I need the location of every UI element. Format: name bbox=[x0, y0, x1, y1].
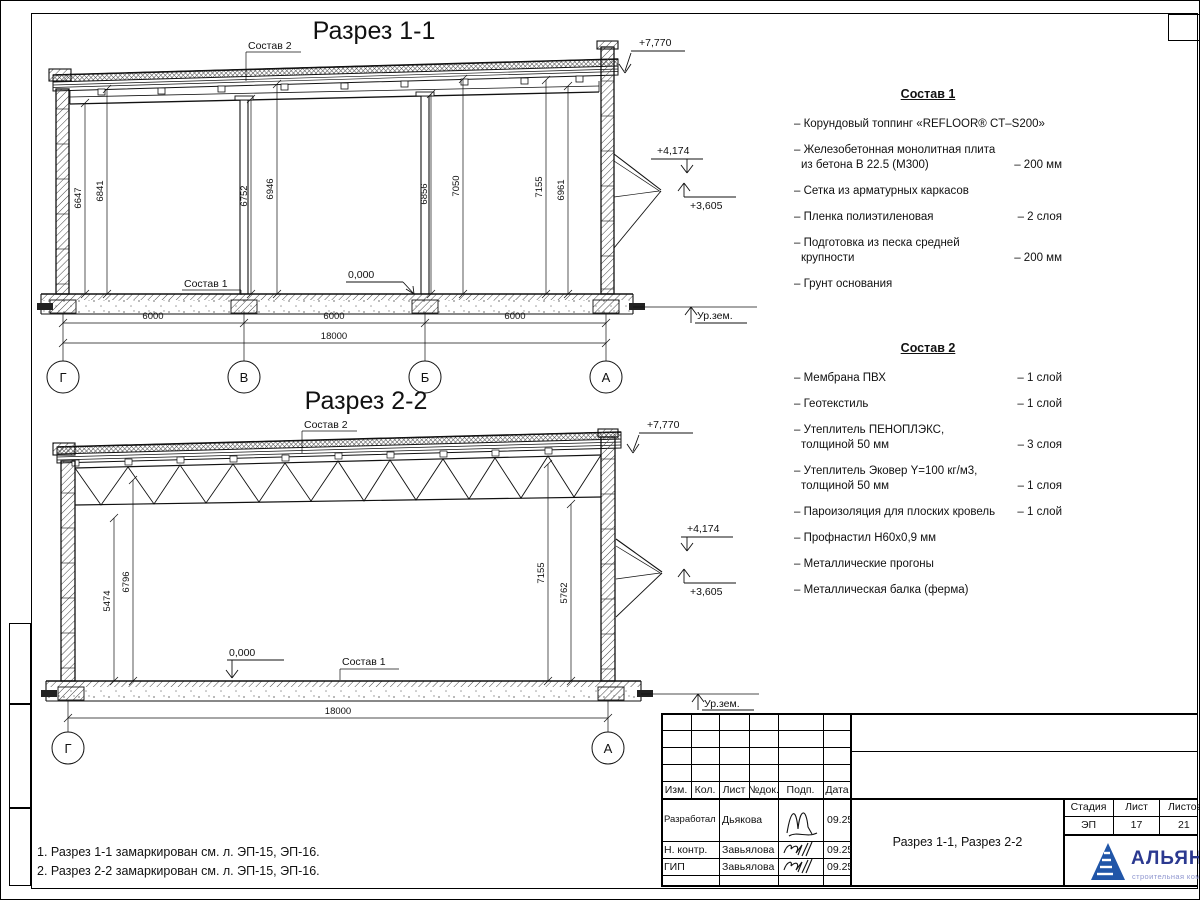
section-2-floor-elevation: 0,000 bbox=[229, 647, 255, 659]
section-1-linework bbox=[37, 41, 757, 393]
section-1-canopy-bottom-elevation: +3,605 bbox=[690, 200, 723, 212]
dim-label: 6796 bbox=[121, 571, 132, 592]
sheet-notes: 1. Разрез 1-1 замаркирован см. л. ЭП-15,… bbox=[37, 843, 320, 881]
tb-sheet-value: 17 bbox=[1114, 816, 1159, 834]
composition-item: – Пароизоляция для плоских кровель– 1 сл… bbox=[794, 505, 1062, 520]
dim-label: 7155 bbox=[534, 176, 545, 197]
composition-item: – Грунт основания bbox=[794, 277, 1062, 292]
tb-date-developer: 09.25 bbox=[824, 798, 851, 841]
grid-axis-label: А bbox=[602, 370, 611, 385]
tb-name-gip: Завьялова bbox=[719, 858, 778, 875]
section-2-roof-composition-label: Состав 2 bbox=[304, 419, 348, 431]
dim-label: 6000 bbox=[504, 311, 525, 322]
tb-col-data: Дата bbox=[823, 781, 851, 798]
section-2-canopy-bottom-elevation: +3,605 bbox=[690, 586, 723, 598]
composition-item: – Металлическая балка (ферма) bbox=[794, 583, 1062, 598]
section-1-canopy-top-elevation: +4,174 bbox=[657, 145, 690, 157]
composition-item: – Профнастил Н60х0,9 мм bbox=[794, 531, 1062, 546]
tb-stage-label: Стадия bbox=[1064, 798, 1113, 816]
dim-label: 5762 bbox=[559, 582, 570, 603]
dim-label: 18000 bbox=[325, 706, 351, 717]
dim-label: 6946 bbox=[265, 178, 276, 199]
section-1-roof-composition-label: Состав 2 bbox=[248, 40, 292, 52]
composition-2-list: Состав 2 – Мембрана ПВХ– 1 слой – Геотек… bbox=[794, 341, 1062, 609]
signature-developer bbox=[781, 803, 821, 839]
dim-label: 7155 bbox=[536, 562, 547, 583]
tb-name-developer: Дьякова bbox=[719, 798, 778, 841]
signature-gip bbox=[781, 858, 823, 875]
dim-label: 6000 bbox=[323, 311, 344, 322]
composition-item: – Мембрана ПВХ– 1 слой bbox=[794, 371, 1062, 386]
tb-date-ncontrol: 09.25 bbox=[824, 841, 851, 858]
dim-label: 6856 bbox=[419, 183, 430, 204]
tb-role-gip: ГИП bbox=[661, 858, 719, 875]
composition-item: – Железобетонная монолитная плита из бет… bbox=[794, 143, 1062, 173]
section-2-canopy-top-elevation: +4,174 bbox=[687, 523, 720, 535]
composition-item: – Утеплитель Эковер Y=100 кг/м3, толщино… bbox=[794, 464, 1062, 494]
tb-stage-value: ЭП bbox=[1064, 816, 1113, 834]
grid-axis-label: Г bbox=[59, 370, 66, 385]
dim-label: 6961 bbox=[556, 179, 567, 200]
section-2-roof-elevation: +7,770 bbox=[647, 419, 680, 431]
composition-item: – Геотекстиль– 1 слой bbox=[794, 397, 1062, 412]
note-line: 1. Разрез 1-1 замаркирован см. л. ЭП-15,… bbox=[37, 843, 320, 862]
composition-item: – Корундовый топпинг «REFLOOR® CT–S200» bbox=[794, 117, 1062, 132]
tb-col-podp: Подп. bbox=[778, 781, 823, 798]
composition-item: – Сетка из арматурных каркасов bbox=[794, 184, 1062, 199]
note-line: 2. Разрез 2-2 замаркирован см. л. ЭП-15,… bbox=[37, 862, 320, 881]
tb-col-ndok: №док. bbox=[749, 781, 778, 798]
tb-document-name: Разрез 1-1, Разрез 2-2 bbox=[852, 799, 1063, 885]
tb-sheet-label: Лист bbox=[1114, 798, 1159, 816]
dim-label: 6647 bbox=[73, 187, 84, 208]
drawing-sheet: Разрез 1-1 Состав 2 Состав 1 +7,770 +4,1… bbox=[0, 0, 1200, 900]
composition-2-title: Состав 2 bbox=[794, 341, 1062, 356]
tb-name-ncontrol: Завьялова bbox=[719, 841, 778, 858]
tb-sheets-value: 21 bbox=[1160, 816, 1200, 834]
grid-axis-label: Г bbox=[64, 741, 71, 756]
composition-item: – Подготовка из песка средней крупности–… bbox=[794, 236, 1062, 266]
tb-col-kol: Кол. bbox=[691, 781, 719, 798]
section-1-floor-composition-label: Состав 1 bbox=[184, 278, 228, 290]
tb-sheets-label: Листов bbox=[1160, 798, 1200, 816]
section-1-ground-level-label: Ур.зем. bbox=[697, 310, 733, 322]
signature-ncontrol bbox=[781, 841, 823, 858]
dim-label: 5474 bbox=[102, 590, 113, 611]
section-2-floor-composition-label: Состав 1 bbox=[342, 656, 386, 668]
tb-role-developer: Разработал bbox=[661, 798, 719, 841]
composition-item: – Пленка полиэтиленовая– 2 слоя bbox=[794, 210, 1062, 225]
company-logo-icon bbox=[1091, 843, 1125, 881]
dim-label: 6752 bbox=[239, 185, 250, 206]
composition-1-list: Состав 1 – Корундовый топпинг «REFLOOR® … bbox=[794, 87, 1062, 303]
section-2-linework bbox=[41, 429, 759, 764]
dim-label: 7050 bbox=[451, 175, 462, 196]
composition-1-title: Состав 1 bbox=[794, 87, 1062, 102]
grid-axis-label: В bbox=[240, 370, 249, 385]
composition-item: – Утеплитель ПЕНОПЛЭКС, толщиной 50 мм– … bbox=[794, 423, 1062, 453]
section-2-title: Разрез 2-2 bbox=[305, 387, 428, 415]
section-1-roof-elevation: +7,770 bbox=[639, 37, 672, 49]
company-name: АЛЬЯНС bbox=[1131, 847, 1200, 871]
company-subtitle: строительная компания bbox=[1132, 871, 1200, 881]
dim-label: 18000 bbox=[321, 331, 347, 342]
section-1-floor-elevation: 0,000 bbox=[348, 269, 374, 281]
composition-item: – Металлические прогоны bbox=[794, 557, 1062, 572]
grid-axis-label: А bbox=[604, 741, 613, 756]
dim-label: 6841 bbox=[95, 180, 106, 201]
tb-col-list: Лист bbox=[719, 781, 749, 798]
section-1-title: Разрез 1-1 bbox=[313, 17, 436, 45]
dim-label: 6000 bbox=[142, 311, 163, 322]
tb-date-gip: 09.25 bbox=[824, 858, 851, 875]
grid-axis-label: Б bbox=[421, 370, 430, 385]
section-2-ground-level-label: Ур.зем. bbox=[704, 698, 740, 710]
tb-role-ncontrol: Н. контр. bbox=[661, 841, 719, 858]
tb-col-izm: Изм. bbox=[661, 781, 691, 798]
